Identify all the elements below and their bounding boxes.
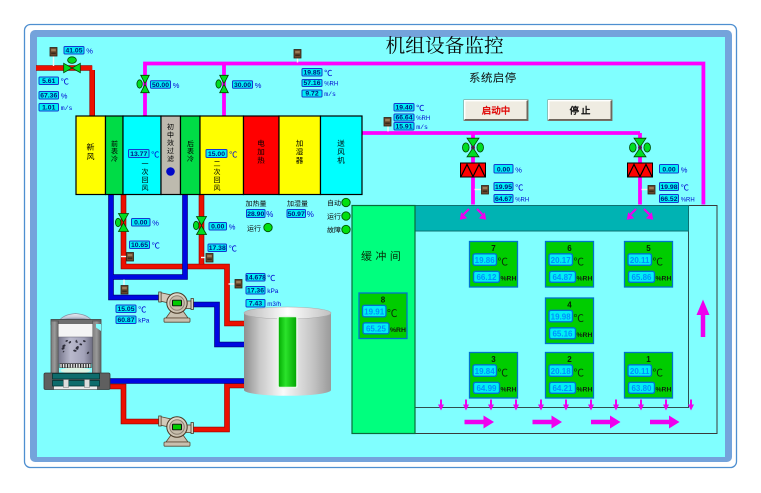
svg-text:%RH: %RH xyxy=(501,387,517,394)
svg-text:15.91: 15.91 xyxy=(395,124,412,131)
svg-text:15.05: 15.05 xyxy=(117,306,134,313)
svg-text:%RH: %RH xyxy=(681,198,695,204)
svg-text:28.90: 28.90 xyxy=(247,211,264,218)
svg-text:20.17: 20.17 xyxy=(551,256,572,265)
svg-text:64.21: 64.21 xyxy=(552,384,573,393)
svg-text:60.87: 60.87 xyxy=(117,317,134,324)
svg-text:%RH: %RH xyxy=(515,198,529,204)
svg-text:kPa: kPa xyxy=(267,288,279,295)
svg-text:20.11: 20.11 xyxy=(630,367,650,376)
svg-text:1: 1 xyxy=(646,355,651,364)
svg-text:65.86: 65.86 xyxy=(631,273,652,282)
svg-text:66.52: 66.52 xyxy=(660,196,677,203)
svg-text:%RH: %RH xyxy=(656,276,672,283)
svg-text:0.00: 0.00 xyxy=(211,224,224,231)
svg-text:20.11: 20.11 xyxy=(630,256,650,265)
svg-text:%RH: %RH xyxy=(577,332,593,339)
svg-text:m/s: m/s xyxy=(324,91,336,98)
svg-text:5.61: 5.61 xyxy=(42,78,55,85)
svg-text:10.65: 10.65 xyxy=(131,242,148,249)
svg-text:%RH: %RH xyxy=(324,82,338,88)
svg-text:%: % xyxy=(86,47,93,56)
svg-text:%RH: %RH xyxy=(577,276,593,283)
svg-text:64.67: 64.67 xyxy=(495,196,512,203)
svg-text:2: 2 xyxy=(567,355,572,364)
svg-text:19.86: 19.86 xyxy=(475,256,496,265)
svg-text:19.91: 19.91 xyxy=(364,307,385,316)
svg-text:50.00: 50.00 xyxy=(152,82,169,89)
svg-text:3: 3 xyxy=(491,355,496,364)
svg-text:%: % xyxy=(515,166,522,175)
svg-text:65.16: 65.16 xyxy=(552,330,573,339)
svg-text:64.87: 64.87 xyxy=(552,273,573,282)
svg-text:30.00: 30.00 xyxy=(234,82,251,89)
svg-text:5: 5 xyxy=(646,244,651,253)
svg-text:19.85: 19.85 xyxy=(303,70,320,77)
svg-text:8: 8 xyxy=(381,296,386,305)
svg-text:0.00: 0.00 xyxy=(662,167,675,174)
svg-text:19.95: 19.95 xyxy=(495,184,512,191)
svg-text:0.00: 0.00 xyxy=(134,220,147,227)
svg-text:19.98: 19.98 xyxy=(660,184,677,191)
svg-text:7.43: 7.43 xyxy=(249,301,262,308)
svg-text:9.72: 9.72 xyxy=(305,91,318,98)
svg-text:67.36: 67.36 xyxy=(40,93,57,100)
svg-text:m/s: m/s xyxy=(61,105,73,112)
svg-text:%: % xyxy=(229,223,236,232)
svg-text:kPa: kPa xyxy=(138,318,150,325)
svg-text:57.16: 57.16 xyxy=(303,80,320,87)
svg-text:66.64: 66.64 xyxy=(395,115,412,122)
svg-text:%: % xyxy=(266,210,273,219)
svg-text:m/s: m/s xyxy=(416,124,428,131)
svg-text:19.98: 19.98 xyxy=(551,312,572,321)
svg-text:m3/h: m3/h xyxy=(267,301,281,308)
svg-text:6: 6 xyxy=(567,244,572,253)
svg-text:%RH: %RH xyxy=(416,116,430,122)
svg-text:41.05: 41.05 xyxy=(65,48,82,55)
svg-text:17.36: 17.36 xyxy=(247,288,264,295)
svg-text:%RH: %RH xyxy=(577,387,593,394)
svg-text:63.80: 63.80 xyxy=(631,384,652,393)
svg-text:%: % xyxy=(152,219,159,228)
svg-text:13.77: 13.77 xyxy=(130,151,147,158)
svg-text:7: 7 xyxy=(491,244,496,253)
svg-text:0.00: 0.00 xyxy=(497,167,510,174)
svg-text:4: 4 xyxy=(567,301,572,310)
svg-text:%: % xyxy=(61,92,68,101)
svg-text:%: % xyxy=(173,81,180,90)
svg-text:20.18: 20.18 xyxy=(551,367,572,376)
svg-text:19.40: 19.40 xyxy=(395,105,412,112)
svg-text:17.38: 17.38 xyxy=(209,245,226,252)
svg-text:19.84: 19.84 xyxy=(475,367,496,376)
svg-text:50.97: 50.97 xyxy=(288,211,305,218)
svg-text:15.00: 15.00 xyxy=(208,151,225,158)
svg-text:65.25: 65.25 xyxy=(366,325,387,334)
svg-text:%: % xyxy=(681,166,688,175)
svg-text:%: % xyxy=(307,210,314,219)
svg-text:%RH: %RH xyxy=(390,327,406,334)
svg-text:1.01: 1.01 xyxy=(42,105,55,112)
svg-text:%RH: %RH xyxy=(501,276,517,283)
svg-text:66.12: 66.12 xyxy=(476,273,497,282)
svg-text:14.678: 14.678 xyxy=(245,275,266,282)
svg-text:64.99: 64.99 xyxy=(476,384,497,393)
svg-text:%RH: %RH xyxy=(656,387,672,394)
svg-text:%: % xyxy=(255,81,262,90)
